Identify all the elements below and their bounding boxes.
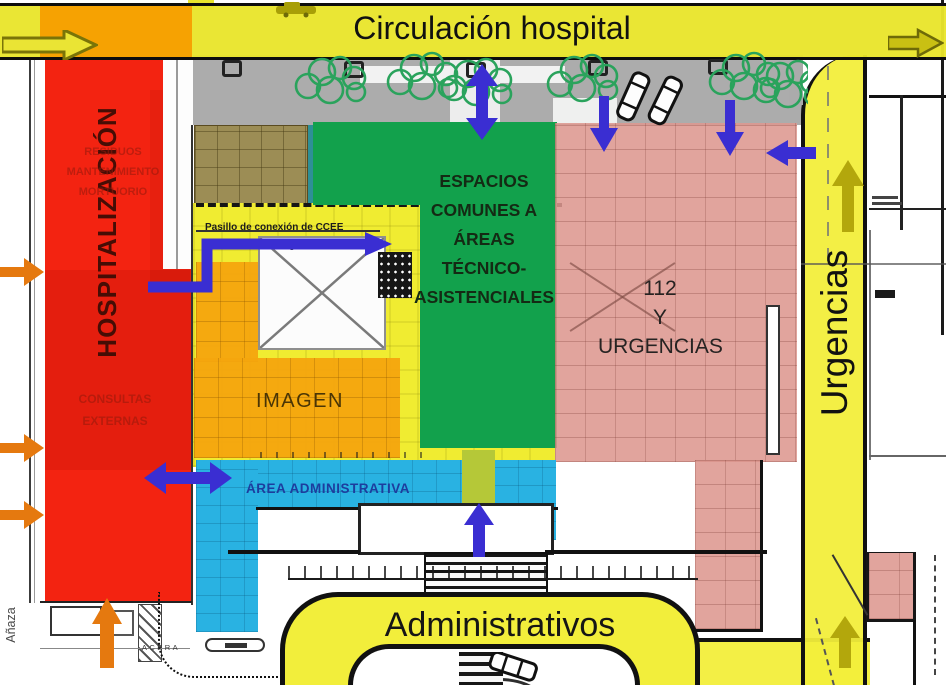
orange-right-arrow-icon bbox=[0, 501, 44, 529]
plan-text-mark bbox=[872, 196, 898, 199]
blue-elbow-arrow-icon bbox=[140, 232, 398, 300]
hospitalizacion-faint-label: RESIDUOS MANTENIMIENTO MORTUORIO bbox=[48, 142, 178, 204]
espacios-line: COMUNES A bbox=[400, 196, 568, 225]
tree-pit bbox=[222, 60, 242, 77]
faint-line: RESIDUOS bbox=[48, 142, 178, 162]
street-anaza-label: Añaza bbox=[4, 596, 18, 654]
blue-double-vertical-arrow-icon bbox=[466, 64, 498, 140]
building-line bbox=[545, 550, 767, 554]
orange-up-arrow-icon bbox=[92, 598, 122, 668]
band-right-arrow-icon bbox=[888, 28, 944, 58]
plan-strip bbox=[766, 305, 780, 455]
zone-edificio-existente bbox=[194, 125, 308, 205]
blue-left-arrow-icon bbox=[766, 138, 816, 168]
zone-112-urgencias-south bbox=[695, 460, 763, 632]
road-urgencias-label: Urgencias bbox=[814, 228, 856, 438]
urgencias112-line: 112 bbox=[598, 274, 722, 303]
zone-espacios-label: ESPACIOS COMUNES A ÁREAS TÉCNICO- ASISTE… bbox=[400, 167, 568, 317]
car-icon bbox=[486, 652, 542, 682]
orange-right-arrow-icon bbox=[0, 434, 44, 462]
zone-pink-east-block bbox=[866, 552, 916, 622]
faint-line: CONSULTAS bbox=[55, 388, 175, 410]
blue-down-arrow-icon bbox=[716, 100, 744, 156]
acera-label: ACERA bbox=[138, 643, 184, 652]
building-edge bbox=[191, 125, 193, 605]
urgencias112-line: URGENCIAS bbox=[598, 332, 722, 361]
furniture-ticks bbox=[260, 452, 430, 458]
plan-line bbox=[913, 620, 916, 685]
plan-text-mark bbox=[872, 202, 902, 205]
zone-hospitalizacion-label: HOSPITALIZACIÓN bbox=[92, 67, 128, 397]
blue-up-arrow-icon bbox=[464, 503, 494, 557]
entrance-canopy bbox=[358, 503, 554, 555]
parking-ticks bbox=[288, 566, 698, 578]
plan-line bbox=[869, 208, 946, 210]
band-right-arrow-icon bbox=[2, 30, 98, 60]
blue-down-arrow-icon bbox=[590, 96, 618, 152]
plan-line bbox=[869, 95, 946, 98]
consultas-externas-faint-label: CONSULTAS EXTERNAS bbox=[55, 388, 175, 432]
espacios-line: ASISTENCIALES bbox=[400, 283, 568, 312]
road-administrativos-label: Administrativos bbox=[320, 606, 680, 650]
zone-area-administrativa-label: ÁREA ADMINISTRATIVA bbox=[238, 481, 418, 499]
road-up-arrow-icon bbox=[830, 616, 860, 668]
zone-imagen-label: IMAGEN bbox=[245, 390, 355, 416]
band-label: Circulación hospital bbox=[262, 10, 722, 52]
espacios-line: ESPACIOS bbox=[400, 167, 568, 196]
urgencias112-line: Y bbox=[598, 303, 722, 332]
zone-112-urgencias-label: 112 Y URGENCIAS bbox=[598, 274, 722, 366]
faint-line: EXTERNAS bbox=[55, 410, 175, 432]
plan-line bbox=[869, 455, 946, 457]
parked-cars-icon bbox=[612, 68, 696, 134]
blue-double-horizontal-arrow-icon bbox=[144, 462, 232, 494]
plan-mark bbox=[875, 290, 895, 298]
hospital-site-plan: Circulación hospital HOSPITALIZACIÓN RES… bbox=[0, 0, 946, 685]
parking-line bbox=[288, 578, 698, 580]
espacios-line: ÁREAS bbox=[400, 225, 568, 254]
espacios-line: TÉCNICO- bbox=[400, 254, 568, 283]
faint-line: MORTUORIO bbox=[48, 182, 178, 202]
property-dotted-line bbox=[158, 592, 278, 678]
plan-dashed-line bbox=[934, 555, 936, 675]
orange-right-arrow-icon bbox=[0, 258, 44, 286]
band-border-top bbox=[0, 3, 946, 6]
building-line bbox=[228, 550, 360, 554]
road-up-arrow-icon bbox=[832, 160, 864, 232]
faint-line: MANTENIMIENTO bbox=[48, 162, 178, 182]
